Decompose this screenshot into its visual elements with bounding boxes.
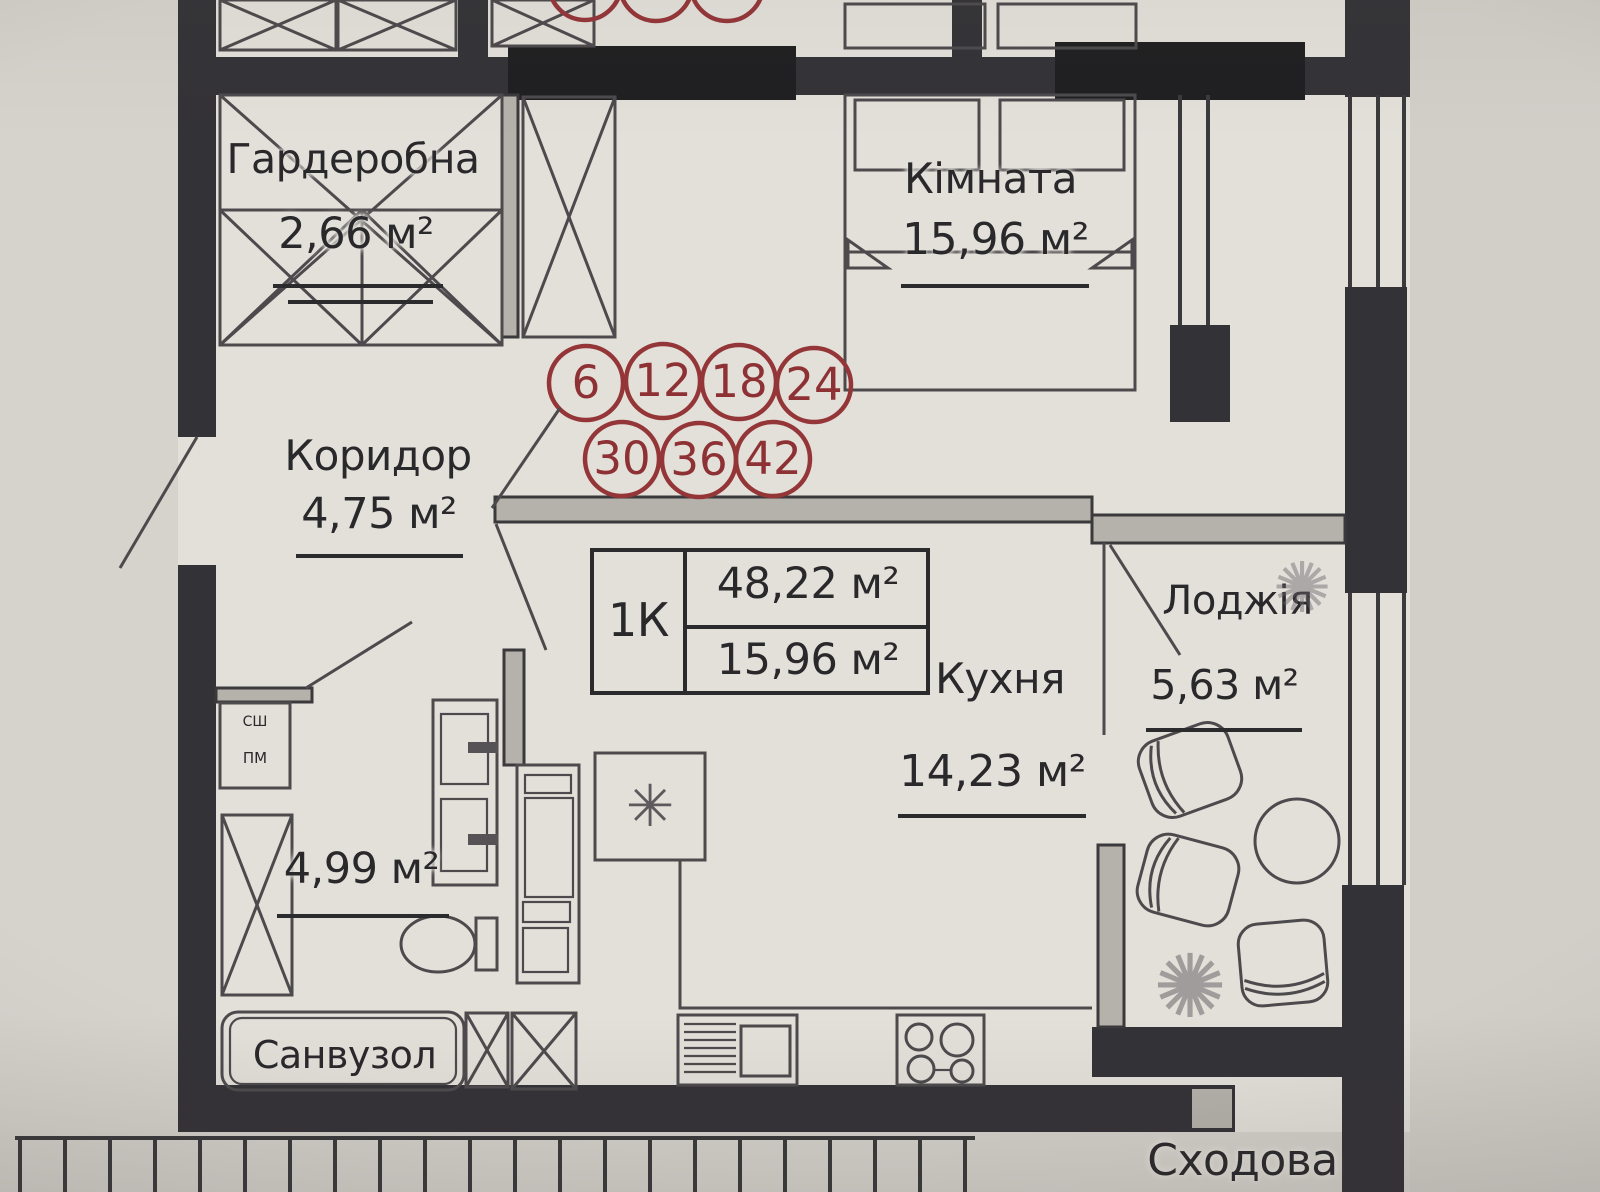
corridor-label: Коридор bbox=[283, 432, 473, 480]
apartment-number-badge: 30 bbox=[585, 422, 659, 496]
closet-label-bottom: ПМ bbox=[222, 750, 288, 767]
living-room-label: Кімната bbox=[888, 155, 1093, 203]
apartment-number-badge: 24 bbox=[777, 348, 851, 422]
wardrobe-area: 2,66 м² bbox=[266, 210, 446, 259]
apartment-number-badge: 12 bbox=[626, 344, 700, 418]
ventilation-shaft bbox=[466, 765, 579, 1089]
kitchen-label: Кухня bbox=[925, 655, 1075, 703]
wardrobe-label: Гардеробна bbox=[222, 136, 484, 183]
info-table-living-area: 15,96 м² bbox=[688, 636, 928, 685]
upper-apartment-fragments bbox=[220, 0, 1136, 50]
apartment-number-badge: 6 bbox=[549, 346, 623, 420]
staircase-treads bbox=[15, 1138, 975, 1192]
plant-icon: ✺ bbox=[1262, 548, 1342, 628]
staircase-label: Сходова bbox=[1140, 1136, 1345, 1187]
closet-label-top: СШ bbox=[222, 714, 288, 730]
bathroom-label: Санвузол bbox=[232, 1034, 457, 1078]
fridge-icon: ✳ bbox=[618, 774, 682, 838]
loggia-area: 5,63 м² bbox=[1142, 662, 1307, 709]
hall-cabinet bbox=[523, 97, 615, 337]
apartment-number-badge: 42 bbox=[736, 422, 810, 496]
apartment-number-circles-top bbox=[549, 0, 763, 21]
plant-icon: ✺ bbox=[1142, 938, 1238, 1034]
kitchen-area: 14,23 м² bbox=[895, 747, 1090, 798]
info-table-total-area: 48,22 м² bbox=[688, 560, 928, 609]
apartment-number-badge: 36 bbox=[662, 423, 736, 497]
living-room-area: 15,96 м² bbox=[893, 215, 1098, 266]
info-table-type: 1К bbox=[592, 594, 685, 647]
apartment-number-badge: 18 bbox=[702, 345, 776, 419]
corridor-area: 4,75 м² bbox=[293, 490, 465, 539]
floor-plan: Гардеробна 2,66 м² Кімната 15,96 м² Кори… bbox=[0, 0, 1600, 1192]
bathroom-area: 4,99 м² bbox=[274, 845, 449, 894]
